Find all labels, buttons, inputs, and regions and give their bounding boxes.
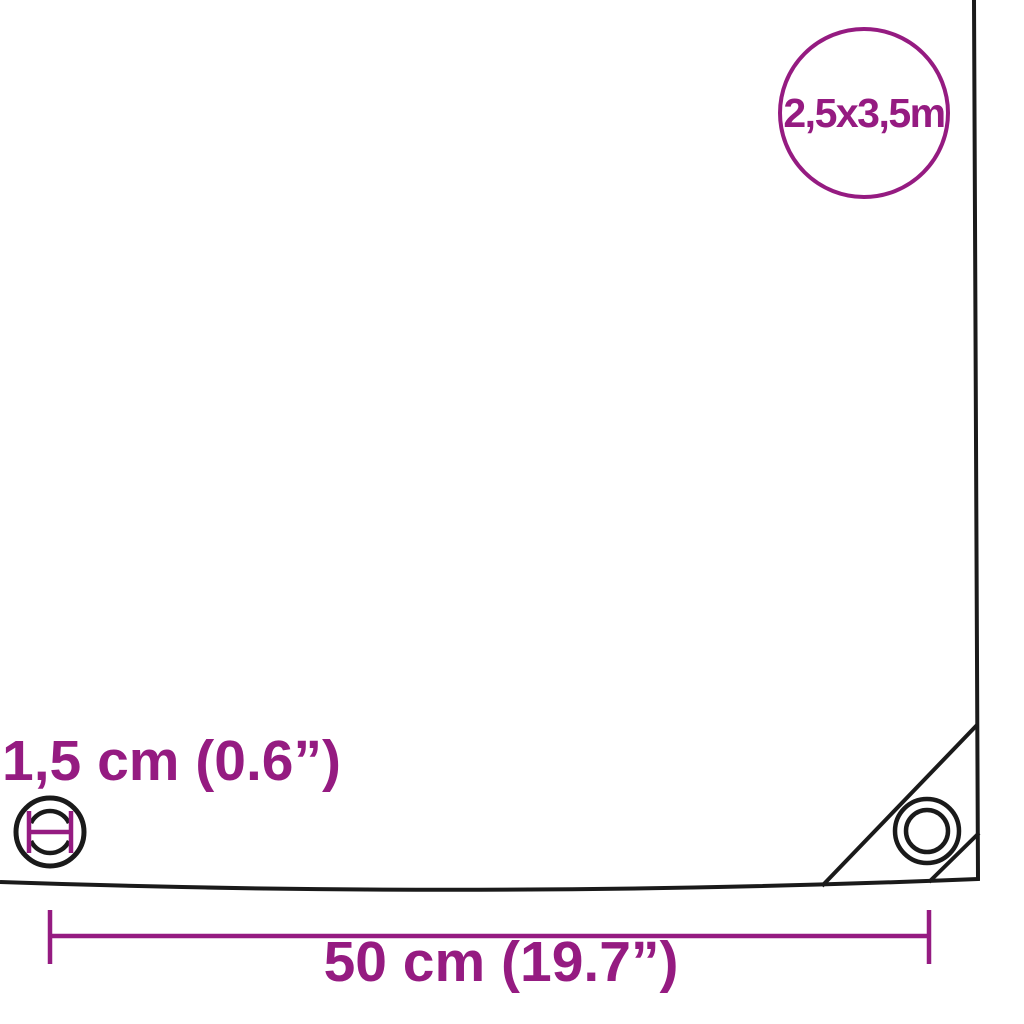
edge-distance-label: 50 cm (19.7”) xyxy=(324,934,679,990)
size-badge-label: 2,5x3,5m xyxy=(783,90,944,137)
product-diagram: 2,5x3,5m 1,5 cm (0.6”) 50 cm (19.7”) xyxy=(0,0,1024,1024)
corner-seam-main xyxy=(822,725,977,886)
corner-seam-icon xyxy=(822,725,979,886)
grommet-diameter-icon xyxy=(16,798,84,866)
eyelet-diameter-label: 1,5 cm (0.6”) xyxy=(2,733,341,789)
corner-grommet-icon xyxy=(895,799,959,863)
size-badge: 2,5x3,5m xyxy=(778,27,950,199)
